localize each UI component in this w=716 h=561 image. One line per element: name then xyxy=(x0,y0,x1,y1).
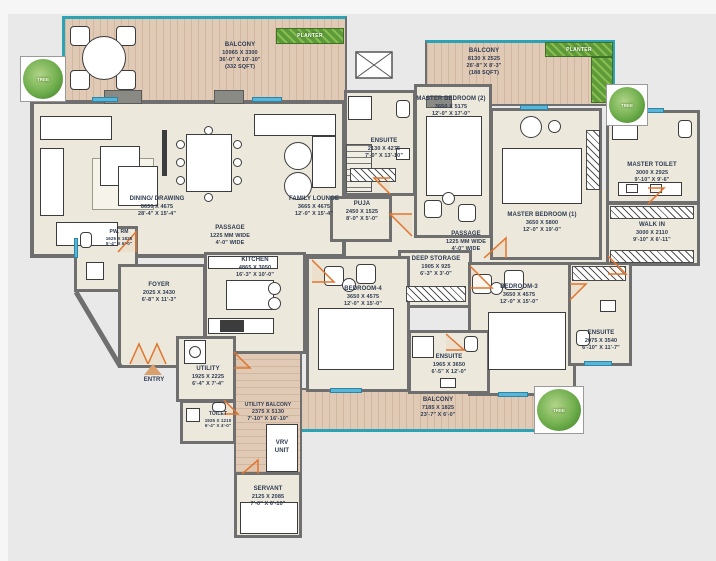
master-toilet-label: MASTER TOILET3000 X 29259'-10" X 9'-6" xyxy=(614,162,690,184)
door-swing-icon xyxy=(312,260,334,282)
tree-label: TREE xyxy=(37,77,49,82)
master-bedroom-1-label: MASTER BEDROOM (1)3650 X 580012'-0" X 19… xyxy=(496,212,588,234)
master-bedroom-2-label: MASTER BEDROOM (2)3650 X 517512'-0" X 17… xyxy=(404,96,498,118)
door-swing-icon xyxy=(608,256,626,274)
door-swing-icon xyxy=(242,460,258,474)
pw-rm-label: PW. RM1625 X 18255'-4" X 6'-0" xyxy=(98,229,140,247)
utility-balcony-label: UTILITY BALCONY2375 X 51307'-10" X 16'-1… xyxy=(234,402,302,423)
door-swing-icon xyxy=(148,344,166,364)
tree-label: TREE xyxy=(621,103,633,108)
bedroom-4-label: BEDROOM-43650 X 457512'-0" X 15'-0" xyxy=(330,286,396,308)
puja-label: PUJA2450 X 15258'-0" X 5'-0" xyxy=(334,201,390,223)
ensuite-b4-label: ENSUITE1965 X 36506'-5" X 12'-0" xyxy=(416,354,482,376)
door-swing-icon xyxy=(374,178,390,194)
passage-label-2: PASSAGE1225 MM WIDE4'-0" WIDE xyxy=(432,231,500,253)
tree-box: TREE xyxy=(534,386,584,434)
ensuite-b3-label: ENSUITE2075 X 35406'-10" X 11'-7" xyxy=(572,330,630,352)
servant-label: SERVANT2125 X 20857'-0" X 6'-10" xyxy=(238,486,298,508)
tree-box: TREE xyxy=(606,84,648,126)
tree-box: TREE xyxy=(20,56,66,102)
ensuite-m2-label: ENSUITE2130 X 42757'-0" X 13'-10" xyxy=(352,138,416,160)
tree-label: TREE xyxy=(553,408,565,413)
balcony-bottom-label: BALCONY7185 X 182523'-7" X 6'-0" xyxy=(392,397,484,419)
door-swing-icon xyxy=(234,352,250,368)
door-swing-icon xyxy=(130,344,148,364)
diagonal-wall xyxy=(76,292,120,366)
dining-label: DINING/ DRAWING8630 X 467528'-4" X 15'-4… xyxy=(112,196,202,218)
door-swing-icon xyxy=(446,334,464,350)
door-swing-icon xyxy=(570,284,586,300)
utility-label: UTILITY1925 X 22256'-4" X 7'-4" xyxy=(182,366,234,388)
balcony-tl-label: BALCONY10965 X 330036'-0" X 10'-10"(332 … xyxy=(195,42,285,71)
bedroom-3-label: BEDROOM-33650 X 457512'-0" X 15'-0" xyxy=(486,284,552,306)
passage-label-1: PASSAGE1225 MM WIDE4'-0" WIDE xyxy=(196,225,264,247)
toilet-label: TOILET1925 X 12106'-4" X 4'-0" xyxy=(196,411,240,429)
door-swing-icon xyxy=(648,188,664,204)
balcony-tr-label: BALCONY8130 X 252526'-8" X 8'-3"(188 SQF… xyxy=(442,48,526,77)
walk-in-label: WALK IN3000 X 21109'-10" X 6'-11" xyxy=(614,222,690,244)
deep-storage-label: DEEP STORAGE1905 X 9256'-3" X 3'-0" xyxy=(404,256,468,278)
floor-plan: PLANTER PLANTER TREE TREE TREE xyxy=(0,0,716,561)
kitchen-label: KITCHEN4865 X 305016'-3" X 10'-0" xyxy=(222,257,288,279)
lift-shaft xyxy=(356,52,392,78)
vrv-label: VRVUNIT xyxy=(266,440,298,456)
tree-icon: TREE xyxy=(23,59,63,99)
entry-label: ENTRY xyxy=(134,377,174,385)
door-swing-icon xyxy=(390,214,412,236)
tree-icon: TREE xyxy=(609,87,645,123)
entry-arrow-icon xyxy=(144,364,162,375)
tree-icon: TREE xyxy=(537,389,581,431)
foyer-label: FOYER2025 X 34306'-8" X 11'-3" xyxy=(126,282,192,304)
